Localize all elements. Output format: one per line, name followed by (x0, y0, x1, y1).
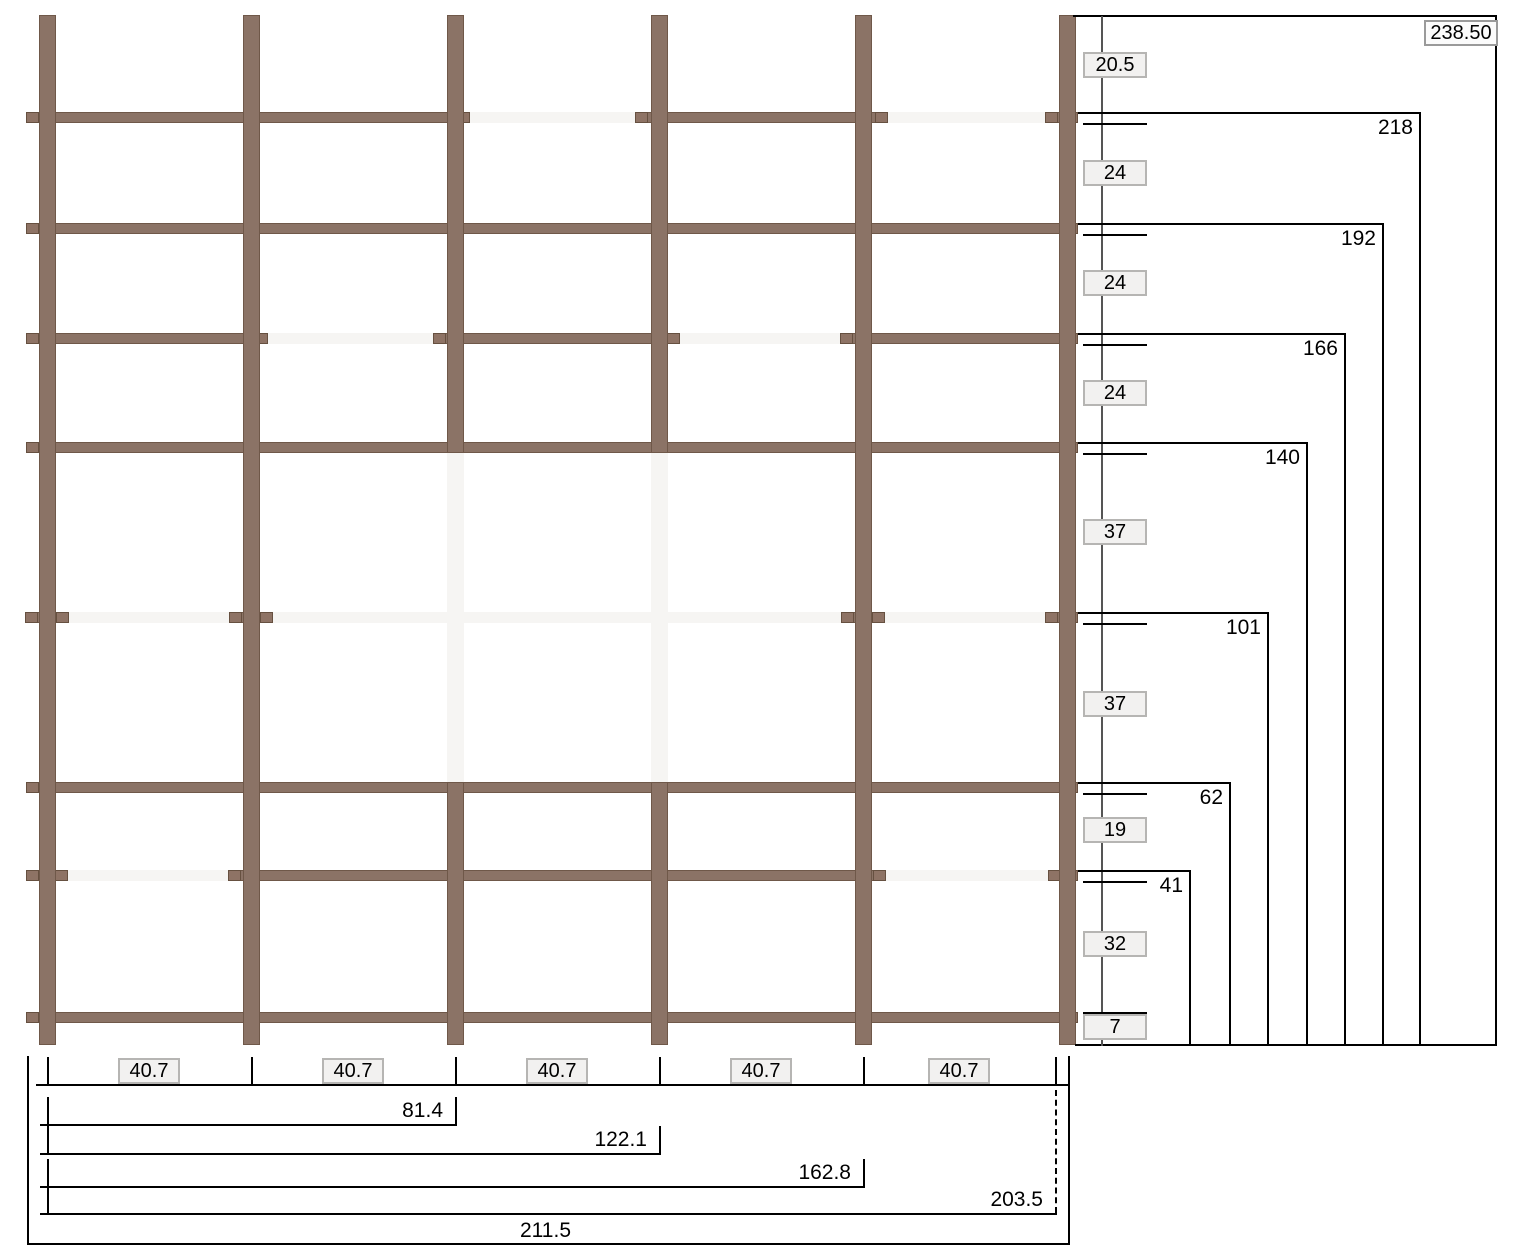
segment-width-box[interactable]: 40.7 (730, 1058, 792, 1084)
rail-end-connector (26, 333, 39, 344)
overall-right-extension-line (1068, 1056, 1070, 1245)
rail-end-connector (667, 333, 680, 344)
overall-dimension-line (27, 1243, 1068, 1245)
vertical-stud (447, 15, 464, 453)
horizontal-rail-segment (26, 1012, 1078, 1023)
level-height-label: 166 (1248, 337, 1338, 360)
dimension-tick (863, 1057, 865, 1084)
overall-height-box[interactable]: 238.50 (1424, 20, 1498, 46)
rail-end-connector (873, 870, 886, 881)
cumulative-width-label: 203.5 (933, 1188, 1043, 1211)
level-dimension-line (1078, 223, 1384, 225)
overall-height-extension-line (1495, 17, 1497, 1046)
interval-value-box[interactable]: 24 (1083, 380, 1147, 406)
rail-end-connector (25, 612, 38, 623)
rail-end-connector (841, 612, 854, 623)
dimension-tick (47, 1097, 49, 1124)
interval-value-box[interactable]: 20.5 (1083, 52, 1147, 78)
rail-end-connector (56, 612, 69, 623)
level-dimension-line (1078, 870, 1191, 872)
ghost-rail-segment (69, 612, 229, 623)
level-height-label: 101 (1171, 616, 1261, 639)
ghost-rail-segment (680, 333, 840, 344)
rail-end-connector (26, 782, 39, 793)
dimension-tick (455, 1097, 457, 1124)
rail-end-connector (1045, 612, 1058, 623)
rail-end-connector (635, 112, 648, 123)
interval-value-box[interactable]: 19 (1083, 817, 1147, 843)
dimension-tick (659, 1057, 661, 1084)
ghost-rail-segment (268, 333, 433, 344)
horizontal-rail-segment (26, 333, 268, 344)
ghost-rail-segment (470, 112, 635, 123)
ghost-rail-segment (273, 612, 841, 623)
dimension-tick (1055, 1057, 1057, 1084)
horizontal-rail-segment (26, 782, 1078, 793)
rail-end-connector (875, 112, 888, 123)
level-height-label: 140 (1210, 446, 1300, 469)
horizontal-rail-segment (433, 333, 680, 344)
segment-width-box[interactable]: 40.7 (322, 1058, 384, 1084)
horizontal-rail-segment (228, 870, 886, 881)
vertical-stud (243, 15, 260, 1045)
horizontal-rail-segment (635, 112, 888, 123)
vertical-stud (651, 782, 668, 1045)
dimension-extension-dashed (1055, 1090, 1057, 1213)
cumulative-dimension-line (40, 1153, 661, 1155)
cumulative-dimension-line (40, 1124, 457, 1126)
cumulative-width-label: 81.4 (333, 1099, 443, 1122)
interval-value-box[interactable]: 24 (1083, 160, 1147, 186)
overall-width-label: 211.5 (520, 1219, 640, 1242)
level-height-label: 41 (1093, 874, 1183, 897)
cumulative-dimension-line (40, 1186, 865, 1188)
rail-bottom-tick (1083, 234, 1147, 236)
segment-dimension-line (36, 1084, 1068, 1086)
level-height-label: 192 (1286, 227, 1376, 250)
dimension-tick (659, 1126, 661, 1153)
dimension-tick (455, 1057, 457, 1084)
rail-end-connector (26, 442, 39, 453)
rail-end-connector (872, 612, 885, 623)
cumulative-width-label: 162.8 (741, 1161, 851, 1184)
dimension-tick (47, 1159, 49, 1186)
dimension-tick (47, 1186, 49, 1213)
rail-bottom-tick (1083, 123, 1147, 125)
ghost-rail-segment (68, 870, 228, 881)
rail-end-connector (1045, 112, 1058, 123)
cumulative-width-label: 122.1 (537, 1128, 647, 1151)
rail-bottom-tick (1083, 623, 1147, 625)
rail-end-connector (26, 870, 39, 881)
rail-end-connector (229, 612, 242, 623)
interval-value-box[interactable]: 24 (1083, 270, 1147, 296)
level-dimension-line (1078, 333, 1346, 335)
rail-bottom-tick (1083, 344, 1147, 346)
level-extension-line (1344, 333, 1346, 1046)
vertical-stud (1059, 15, 1076, 1045)
interval-value-box[interactable]: 37 (1083, 691, 1147, 717)
vertical-stud (651, 15, 668, 453)
rail-end-connector (228, 870, 241, 881)
horizontal-rail-segment (840, 333, 1078, 344)
level-extension-line (1306, 442, 1308, 1046)
level-dimension-line (1078, 612, 1269, 614)
ghost-rail-segment (886, 870, 1048, 881)
vertical-stud (855, 15, 872, 1045)
dimension-tick (47, 1126, 49, 1153)
level-extension-line (1382, 223, 1384, 1046)
overall-left-extension-line (27, 1056, 29, 1245)
rail-end-connector (433, 333, 446, 344)
vertical-stud (447, 782, 464, 1045)
level-extension-line (1229, 782, 1231, 1046)
rail-end-connector (26, 223, 39, 234)
level-dimension-line (1078, 112, 1421, 114)
level-extension-line (1189, 870, 1191, 1046)
dimension-tick (251, 1057, 253, 1084)
interval-value-box[interactable]: 37 (1083, 519, 1147, 545)
ghost-rail-segment (888, 112, 1045, 123)
segment-width-box[interactable]: 40.7 (526, 1058, 588, 1084)
cumulative-dimension-line (40, 1213, 1057, 1215)
segment-width-box[interactable]: 40.7 (118, 1058, 180, 1084)
level-dimension-line (1078, 442, 1308, 444)
level-dimension-line (1078, 782, 1231, 784)
overall-top-extension-line (1073, 15, 1497, 17)
horizontal-rail-segment (26, 442, 1078, 453)
interval-value-box[interactable]: 7 (1083, 1014, 1147, 1040)
baseline (1075, 1044, 1497, 1046)
horizontal-rail-segment (26, 223, 1078, 234)
level-extension-line (1267, 612, 1269, 1046)
framing-diagram: 238.50218192166140101624120.524242437371… (0, 0, 1522, 1260)
level-extension-line (1419, 112, 1421, 1046)
rail-bottom-tick (1083, 453, 1147, 455)
dimension-tick (47, 1057, 49, 1084)
rail-end-connector (26, 1012, 39, 1023)
interval-value-box[interactable]: 32 (1083, 931, 1147, 957)
rail-end-connector (260, 612, 273, 623)
level-height-label: 62 (1133, 786, 1223, 809)
rail-end-connector (26, 112, 39, 123)
ghost-rail-segment (885, 612, 1045, 623)
level-height-label: 218 (1323, 116, 1413, 139)
rail-end-connector (840, 333, 853, 344)
rail-end-connector (55, 870, 68, 881)
dimension-tick (863, 1159, 865, 1186)
vertical-stud (39, 15, 56, 1045)
segment-width-box[interactable]: 40.7 (928, 1058, 990, 1084)
